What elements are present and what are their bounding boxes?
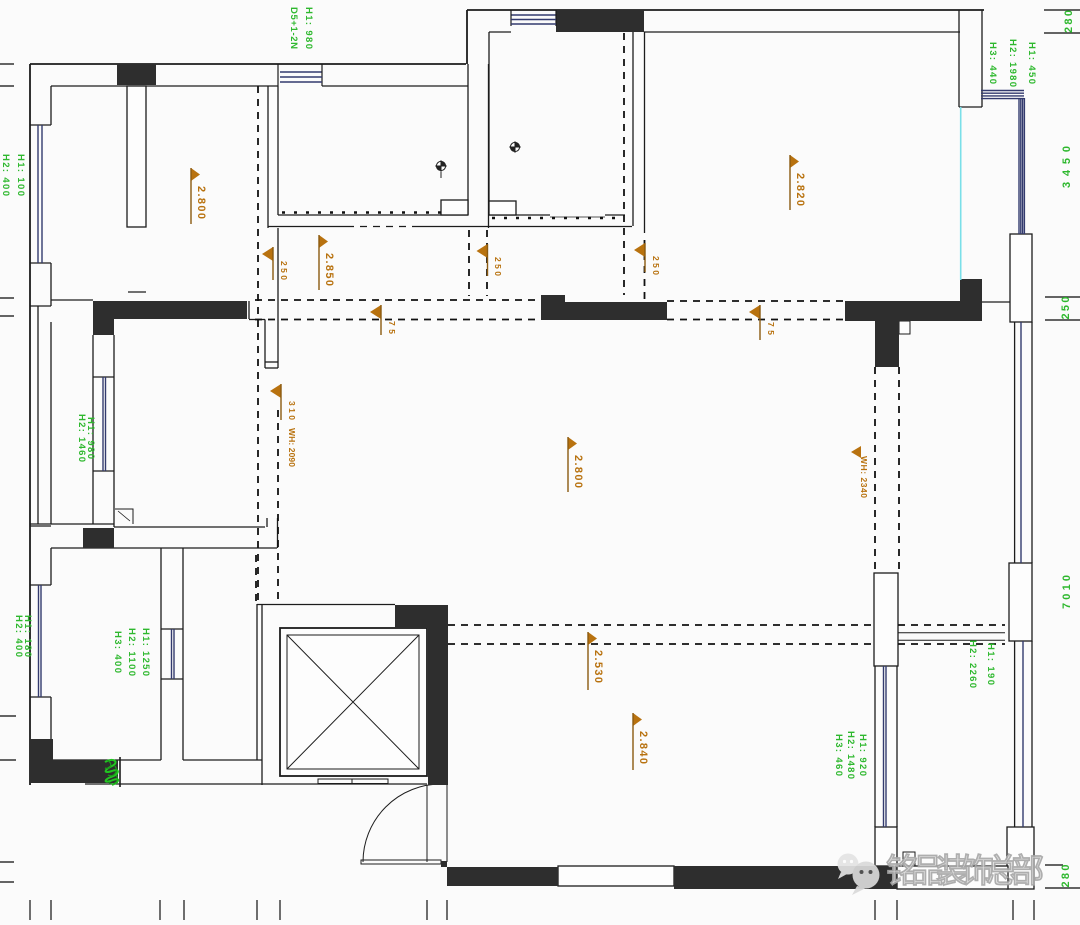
svg-text:2.800: 2.800 — [572, 455, 584, 488]
svg-text:2.530: 2.530 — [592, 650, 604, 683]
svg-text:2.840: 2.840 — [637, 731, 649, 764]
svg-text:H2: 1980: H2: 1980 — [1007, 39, 1018, 87]
svg-text:250: 250 — [493, 257, 503, 276]
svg-text:310: 310 — [287, 401, 297, 420]
svg-text:H2: 2260: H2: 2260 — [967, 640, 978, 688]
svg-text:250: 250 — [651, 256, 661, 275]
svg-text:H1: 1250: H1: 1250 — [140, 628, 151, 676]
svg-text:280: 280 — [1063, 10, 1075, 33]
svg-text:2.820: 2.820 — [794, 173, 806, 206]
svg-text:D5+1-2N: D5+1-2N — [288, 7, 299, 49]
svg-text:250: 250 — [1060, 297, 1072, 320]
svg-text:WH: 2090: WH: 2090 — [287, 428, 297, 467]
svg-text:250: 250 — [279, 261, 289, 280]
svg-text:2.850: 2.850 — [323, 253, 335, 286]
svg-text:280: 280 — [1060, 865, 1072, 888]
svg-text:铭品装饰总部: 铭品装饰总部 — [886, 852, 1044, 889]
svg-text:H2: 1480: H2: 1480 — [845, 731, 856, 779]
svg-text:WH: 2340: WH: 2340 — [859, 456, 869, 498]
svg-text:2.800: 2.800 — [195, 186, 207, 219]
